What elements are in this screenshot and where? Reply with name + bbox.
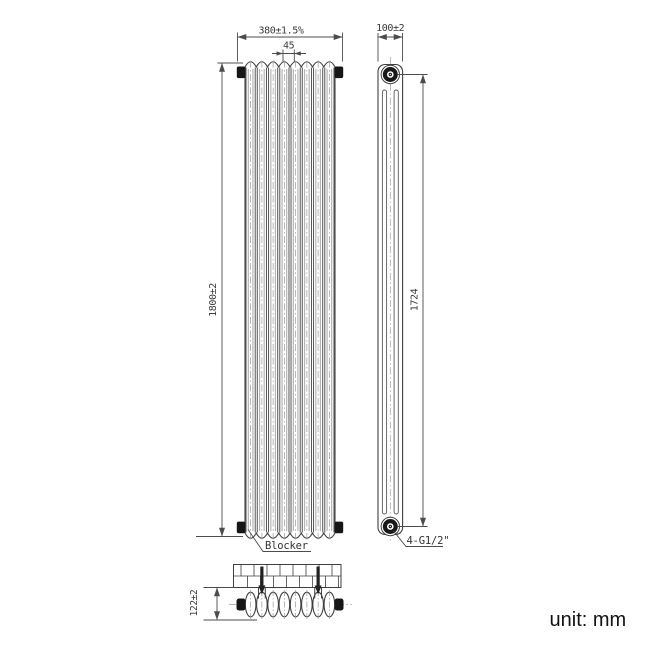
top-right-cap	[335, 67, 344, 79]
arrowhead	[294, 51, 301, 55]
radiator-technical-drawing: 380±1.5% 45 1800±2 100±2 1724 122±2 Bloc…	[0, 0, 650, 650]
connection-label: 4-G1/2"	[407, 535, 450, 547]
bottom-fitting	[381, 517, 399, 535]
drawing-canvas: 380±1.5% 45 1800±2 100±2 1724 122±2 Bloc…	[0, 0, 650, 650]
wall-distance-dim-label: 122±2	[189, 590, 200, 617]
bottom-left-cap	[237, 522, 246, 534]
overall-width-dim-label: 380±1.5%	[259, 26, 304, 37]
port-distance-dim-label: 1724	[410, 288, 421, 311]
depth-dim-label: 100±2	[376, 23, 404, 34]
topview-left-cap	[237, 599, 246, 611]
top-fitting	[381, 65, 399, 83]
overall-height-dim-label: 1800±2	[208, 283, 219, 317]
unit-note: unit: mm	[550, 609, 627, 631]
arrowhead	[277, 51, 284, 55]
column-pitch-dim-label: 45	[283, 41, 295, 52]
top-left-cap	[237, 67, 246, 79]
side-view	[378, 57, 403, 542]
bottom-right-cap	[335, 522, 344, 534]
blocker-label: Blocker	[265, 540, 308, 552]
bracket-shaft	[260, 567, 263, 587]
installation-view	[229, 565, 352, 620]
front-view	[237, 61, 343, 540]
topview-right-cap	[335, 599, 344, 611]
radiator-front-body	[245, 62, 335, 539]
bracket-shaft	[317, 567, 320, 587]
